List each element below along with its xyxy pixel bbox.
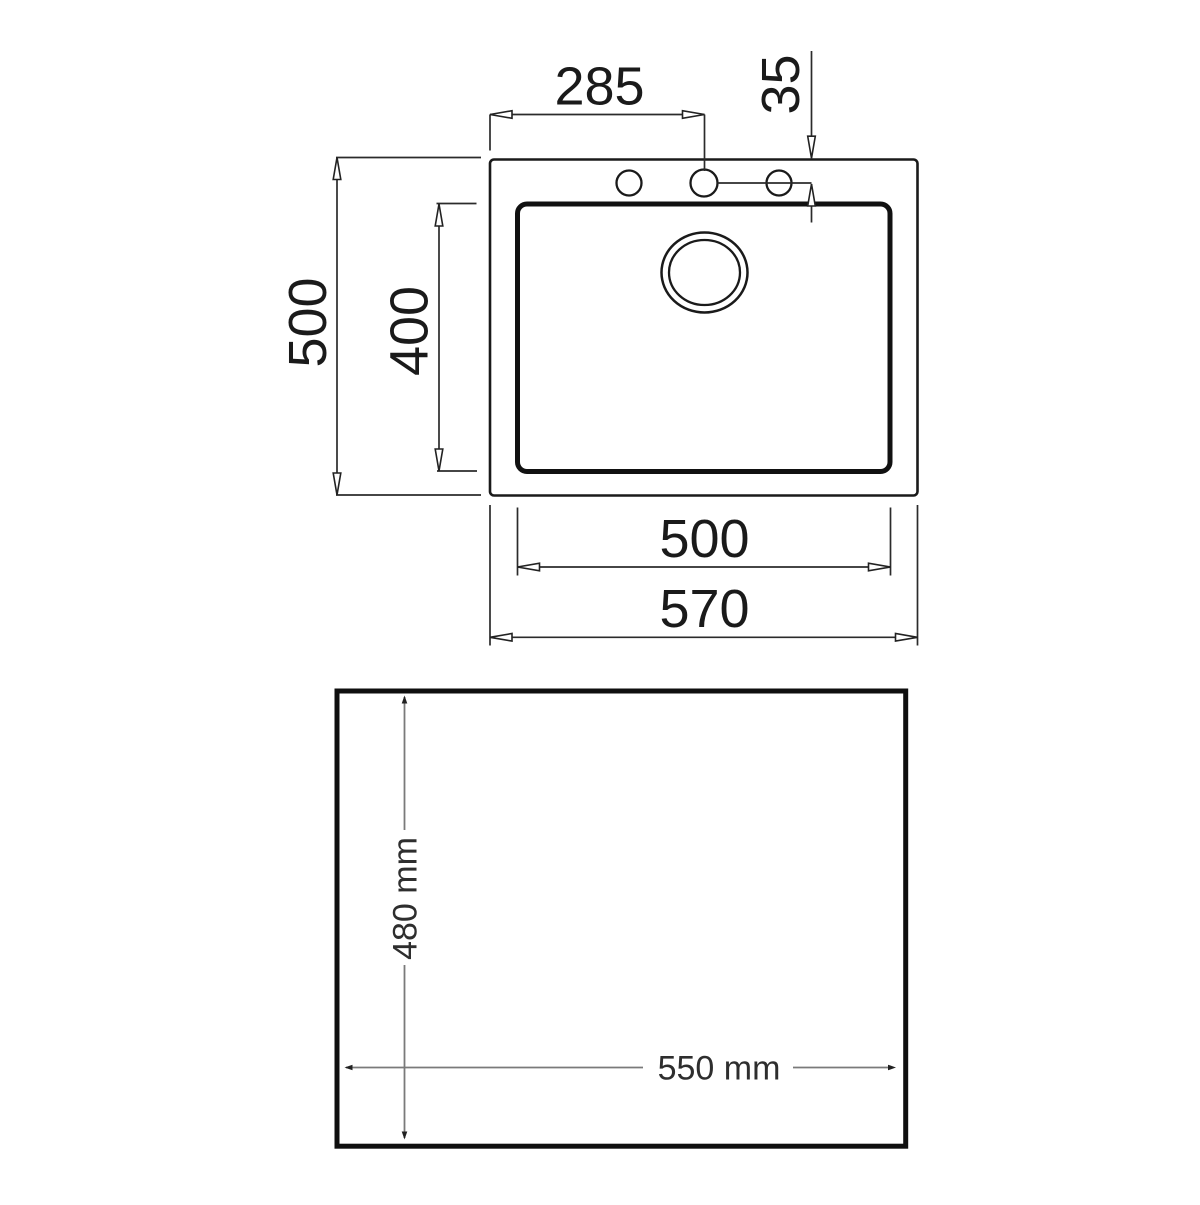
svg-text:500: 500 bbox=[659, 509, 749, 569]
svg-text:550 mm: 550 mm bbox=[658, 1050, 781, 1088]
svg-text:400: 400 bbox=[380, 286, 440, 376]
svg-text:570: 570 bbox=[659, 579, 749, 639]
svg-text:35: 35 bbox=[751, 54, 811, 114]
svg-text:285: 285 bbox=[554, 57, 644, 117]
svg-text:500: 500 bbox=[278, 277, 338, 367]
svg-text:480 mm: 480 mm bbox=[387, 837, 425, 960]
